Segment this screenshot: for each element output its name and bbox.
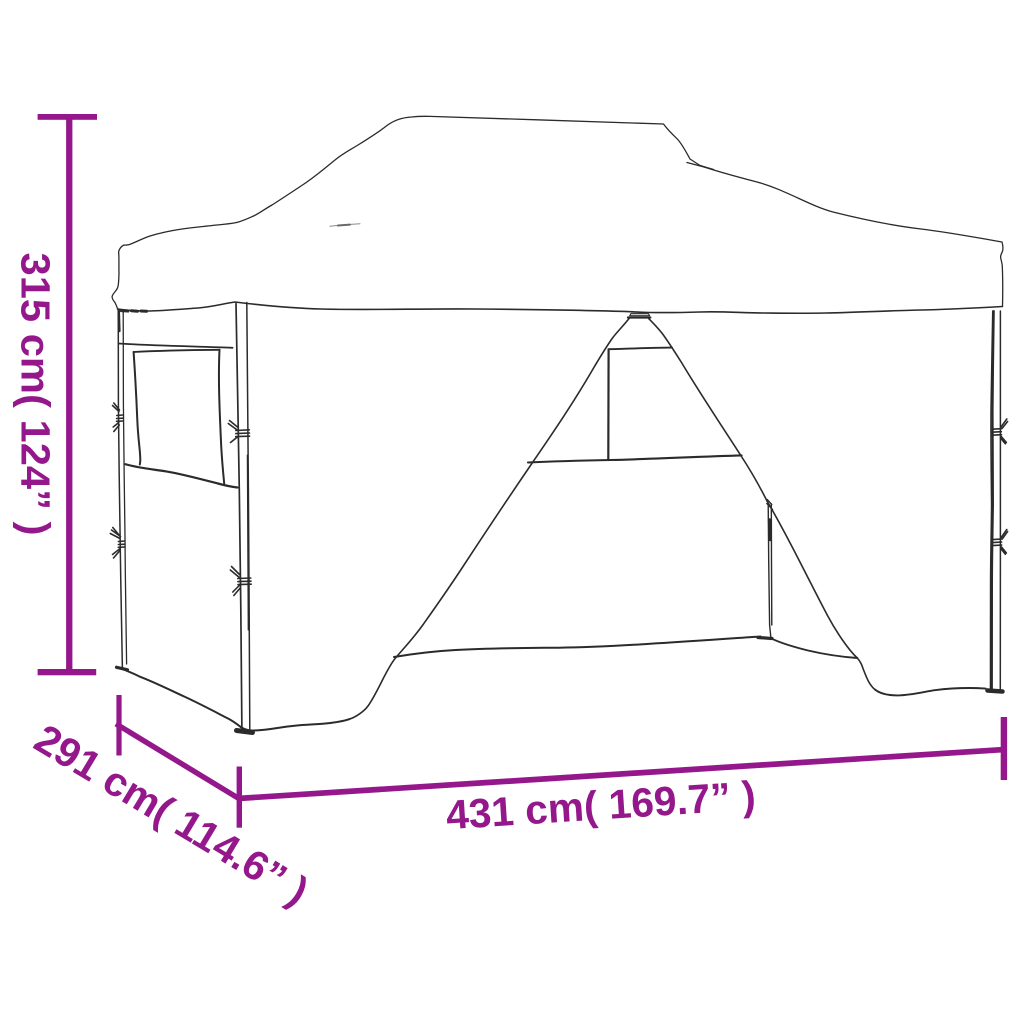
svg-text:315 cm( 124” ): 315 cm( 124” ) xyxy=(13,253,59,536)
